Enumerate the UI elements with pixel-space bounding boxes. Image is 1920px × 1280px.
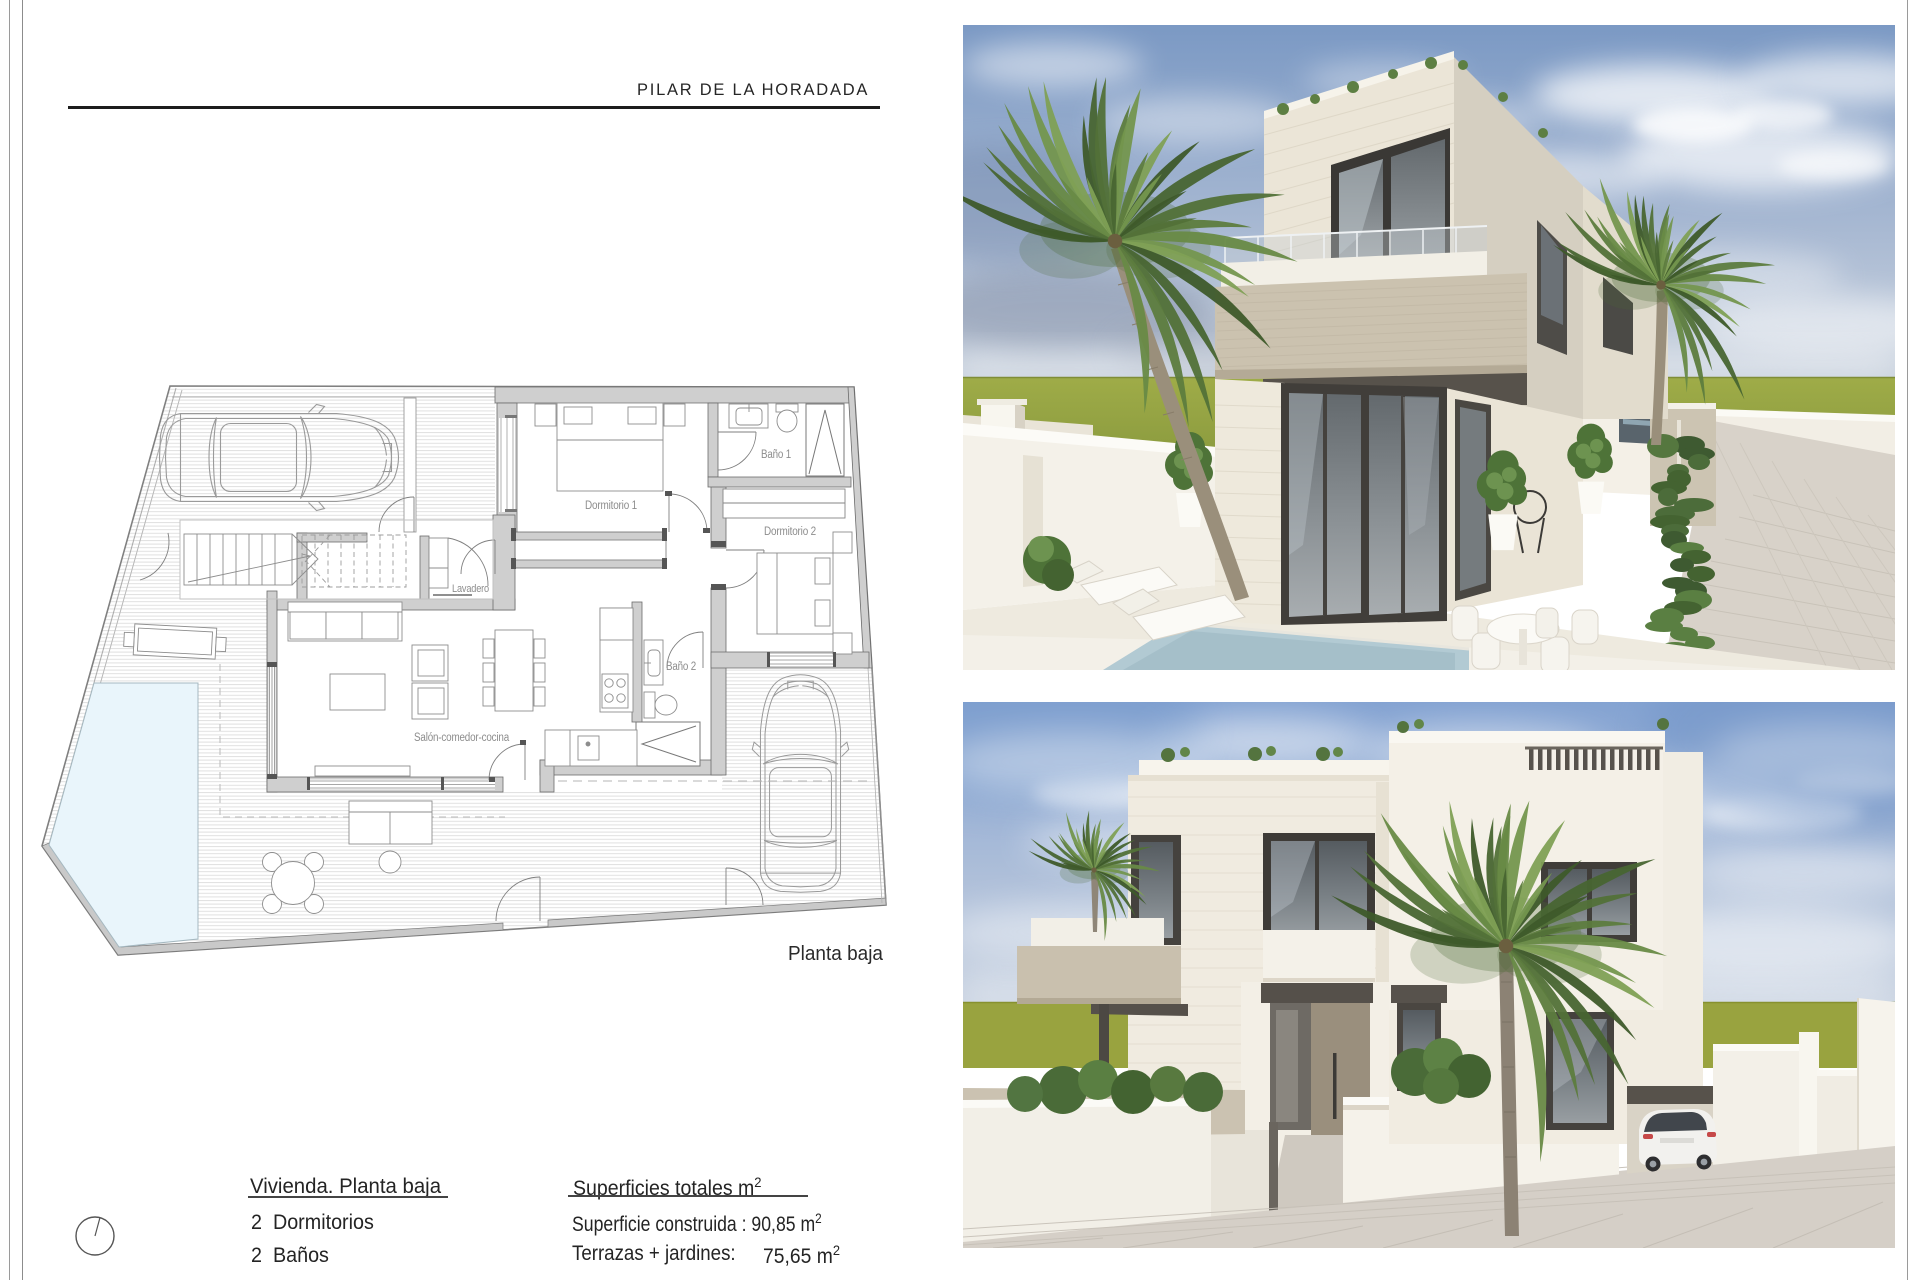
svg-text:Dormitorio 1: Dormitorio 1 <box>585 500 637 512</box>
svg-text:Salón-comedor-cocina: Salón-comedor-cocina <box>414 732 510 744</box>
svg-text:Baño 1: Baño 1 <box>761 449 791 461</box>
svg-text:Baño 2: Baño 2 <box>666 661 696 673</box>
svg-text:Planta baja: Planta baja <box>788 942 884 965</box>
svg-text:Lavadero: Lavadero <box>452 583 489 595</box>
svg-text:Dormitorio 2: Dormitorio 2 <box>764 526 816 538</box>
